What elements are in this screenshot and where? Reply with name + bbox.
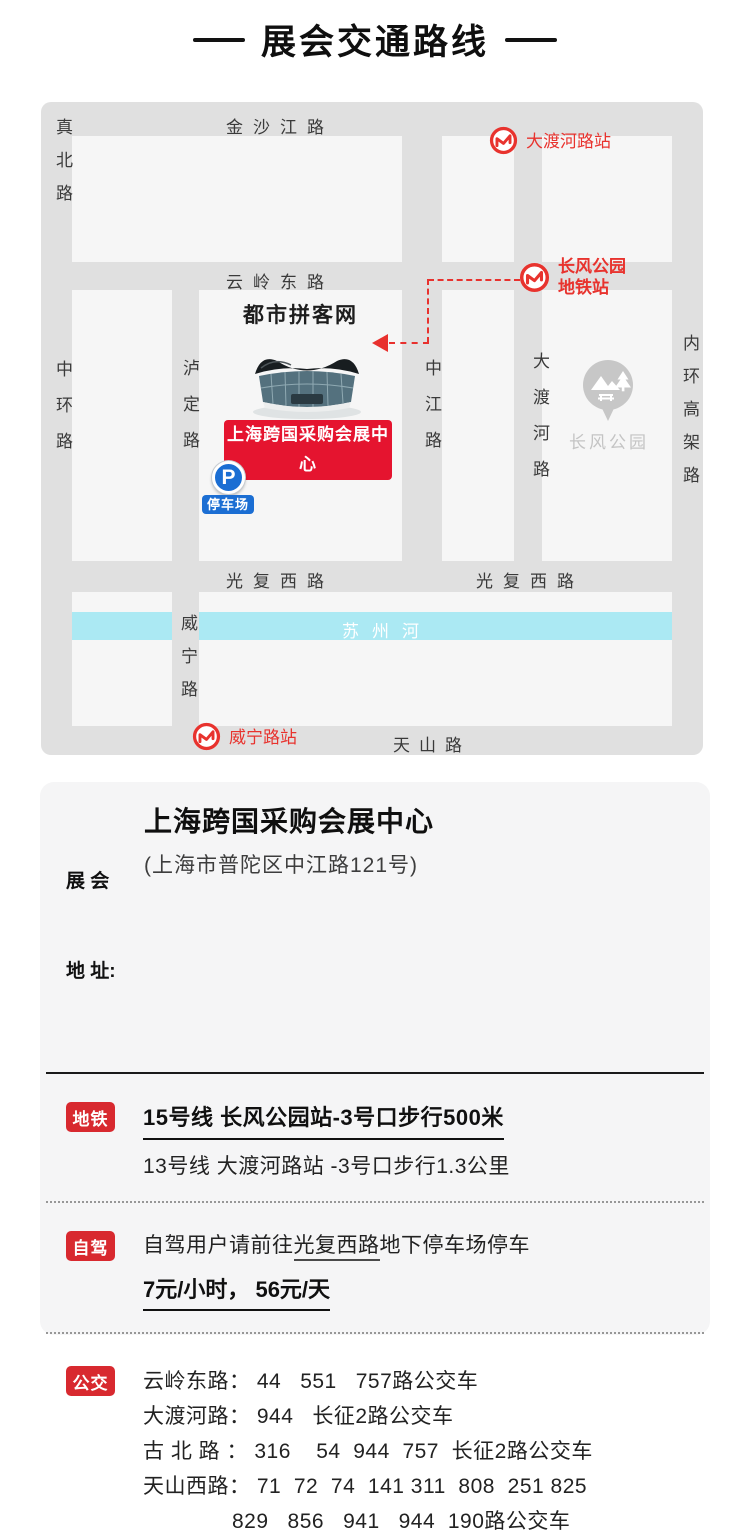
- parking-label: 停车场: [202, 495, 254, 514]
- road-label-jinshajiang: 金沙江路: [226, 113, 334, 138]
- traffic-info-card: 展 会 地 址: 上海跨国采购会展中心 (上海市普陀区中江路121号) 地铁 1…: [40, 782, 710, 1335]
- bus-line: 云岭东路： 44 551 757路公交车: [143, 1364, 593, 1399]
- venue-address-name: 上海跨国采购会展中心: [144, 800, 434, 840]
- driving-line-1-prefix: 自驾用户请前往: [143, 1234, 294, 1257]
- driving-badge: 自驾: [66, 1231, 115, 1261]
- bus-section: 公交 云岭东路： 44 551 757路公交车 大渡河路： 944 长征2路公交…: [40, 1364, 710, 1539]
- driving-section: 自驾 自驾用户请前往光复西路地下停车场停车 7元/小时， 56元/天: [40, 1229, 710, 1311]
- parking-icon: P: [212, 461, 245, 494]
- road-label-tianshan: 天山路: [393, 731, 471, 755]
- metro-logo-icon: [519, 262, 550, 293]
- address-label: 展 会 地 址:: [66, 807, 124, 1047]
- station-weining: 威宁路站: [192, 722, 297, 751]
- exhibition-center-building-image: [246, 336, 368, 420]
- map-block: [442, 290, 514, 561]
- station-label-daduhe: 大渡河路站: [526, 131, 611, 152]
- address-row: 展 会 地 址: 上海跨国采购会展中心 (上海市普陀区中江路121号): [40, 782, 710, 1047]
- title-dash-left: [193, 38, 245, 42]
- route-dashed-bottom: [389, 342, 429, 344]
- bus-line: 大渡河路： 944 长征2路公交车: [143, 1399, 593, 1434]
- road-label-zhonghuan: 中环路: [50, 360, 75, 468]
- bus-line: 天山西路： 71 72 74 141 311 808 251 825: [143, 1469, 593, 1504]
- road-label-weining: 威宁路: [175, 614, 200, 713]
- map-block-park: [542, 290, 672, 561]
- traffic-map: 苏州河 金沙江路 云岭东路 光复西路 光复西路 天山路 真北路 中环路 泸定路 …: [41, 102, 703, 755]
- road-label-luding: 泸定路: [177, 359, 202, 467]
- station-label-weining: 威宁路站: [229, 727, 297, 748]
- metro-badge: 地铁: [66, 1102, 115, 1132]
- address-label-line2: 地 址:: [66, 957, 124, 987]
- metro-logo-icon: [489, 126, 518, 155]
- route-arrow-icon: [372, 334, 388, 352]
- driving-line-1: 自驾用户请前往光复西路地下停车场停车: [143, 1229, 530, 1259]
- metro-section: 地铁 15号线 长风公园站-3号口步行500米 13号线 大渡河路站 -3号口步…: [40, 1100, 710, 1180]
- road-label-zhenbei: 真北路: [50, 118, 75, 217]
- station-label-changfeng-1: 长风公园: [558, 256, 626, 277]
- solid-divider: [46, 1072, 704, 1074]
- station-daduhe: 大渡河路站: [489, 126, 611, 155]
- road-label-zhongjiang: 中江路: [419, 359, 444, 467]
- driving-line-1-road: 光复西路: [294, 1234, 380, 1261]
- page-title: 展会交通路线: [261, 14, 489, 65]
- route-dashed-vertical: [427, 279, 429, 343]
- station-changfeng: 长风公园 地铁站: [519, 262, 626, 298]
- park-label: 长风公园: [568, 428, 650, 453]
- bus-line: 古 北 路 ： 316 54 944 757 长征2路公交车: [143, 1434, 593, 1469]
- metro-logo-icon: [192, 722, 221, 751]
- road-label-daduhe: 大渡河路: [527, 352, 552, 496]
- venue-address-detail: (上海市普陀区中江路121号): [144, 849, 434, 879]
- suzhou-river-band: [199, 612, 672, 640]
- driving-line-1-suffix: 地下停车场停车: [380, 1234, 531, 1257]
- metro-line-2: 13号线 大渡河路站 -3号口步行1.3公里: [143, 1150, 510, 1180]
- dotted-divider: [46, 1201, 704, 1203]
- driving-price-line: 7元/小时， 56元/天: [143, 1272, 330, 1311]
- dotted-divider: [46, 1332, 704, 1334]
- address-label-line1: 展 会: [66, 867, 124, 897]
- bus-badge: 公交: [66, 1366, 115, 1396]
- suzhou-river-band: [72, 612, 172, 640]
- page-title-row: 展会交通路线: [0, 14, 750, 65]
- address-content: 上海跨国采购会展中心 (上海市普陀区中江路121号): [144, 800, 434, 1047]
- road-label-yunlingdong: 云岭东路: [226, 268, 334, 293]
- map-block: [72, 290, 172, 561]
- road-label-guangfuxi-left: 光复西路: [226, 567, 334, 592]
- metro-line-1: 15号线 长风公园站-3号口步行500米: [143, 1100, 504, 1140]
- venue-name-badge: 上海跨国采购会展中心: [224, 420, 392, 480]
- road-label-neihuangaojia: 内环高架路: [677, 334, 702, 499]
- site-name-label: 都市拼客网: [199, 299, 402, 329]
- road-label-guangfuxi-right: 光复西路: [476, 567, 584, 592]
- suzhou-river-label: 苏州河: [342, 617, 432, 642]
- station-label-changfeng-2: 地铁站: [558, 277, 626, 298]
- map-block: [72, 136, 402, 262]
- title-dash-right: [505, 38, 557, 42]
- bus-line-continuation: 829 856 941 944 190路公交车: [232, 1504, 593, 1539]
- park-pin-icon: [579, 358, 637, 424]
- route-dashed-top: [428, 279, 520, 281]
